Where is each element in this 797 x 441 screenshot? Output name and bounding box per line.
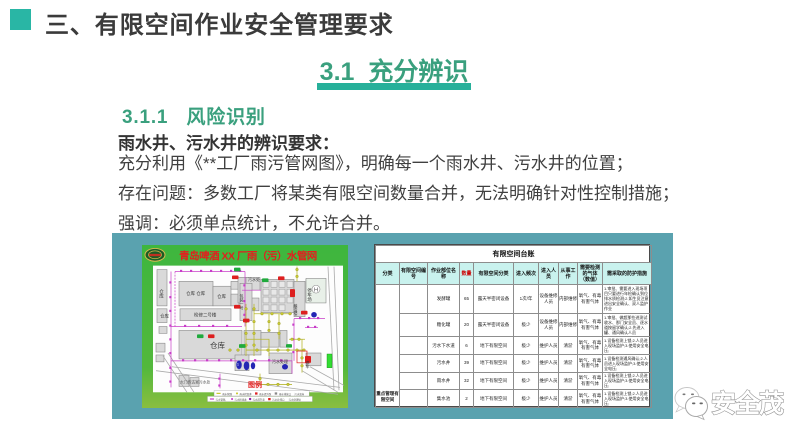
svg-text:仓库: 仓库 (160, 313, 170, 320)
svg-text:污水处理: 污水处理 (272, 359, 288, 364)
svg-text:图例: 图例 (248, 380, 262, 389)
svg-text:污水处: 污水处 (248, 277, 260, 282)
svg-text:青岛啤酒 XX 厂雨（污）水管网: 青岛啤酒 XX 厂雨（污）水管网 (179, 250, 317, 263)
svg-text:雨水提升泵: 雨水提升泵 (259, 392, 272, 396)
svg-text:污水管路: 污水管路 (216, 397, 226, 401)
svg-text:酿造楼: 酿造楼 (293, 303, 298, 316)
svg-text:1: 1 (237, 362, 239, 366)
svg-text:雨水排放口: 雨水排放口 (279, 392, 292, 396)
svg-text:安全茂: 安全茂 (711, 389, 784, 418)
svg-text:污水检查井: 污水检查井 (235, 397, 248, 401)
svg-text:停车: 停车 (305, 360, 310, 369)
svg-text:包装一号: 包装一号 (239, 294, 244, 311)
svg-text:污水流向: 污水流向 (294, 392, 304, 396)
svg-text:污水处理站: 污水处理站 (289, 397, 302, 401)
svg-text:雨水管路: 雨水管路 (222, 392, 232, 396)
svg-text:大门传达室污水处: 大门传达室污水处 (180, 379, 211, 384)
svg-text:仓库: 仓库 (159, 288, 165, 299)
svg-text:仓库: 仓库 (210, 340, 226, 350)
svg-text:停车场: 停车场 (307, 287, 313, 303)
svg-text:污水提升泵: 污水提升泵 (253, 397, 266, 401)
svg-text:雨水检查井: 雨水检查井 (239, 392, 252, 396)
svg-text:H: H (314, 288, 318, 294)
svg-text:仓库 仓库: 仓库 仓库 (186, 290, 206, 297)
svg-text:检修二号楼: 检修二号楼 (194, 312, 217, 319)
svg-text:污水总排口: 污水总排口 (272, 397, 285, 401)
svg-text:仓库: 仓库 (217, 293, 227, 300)
